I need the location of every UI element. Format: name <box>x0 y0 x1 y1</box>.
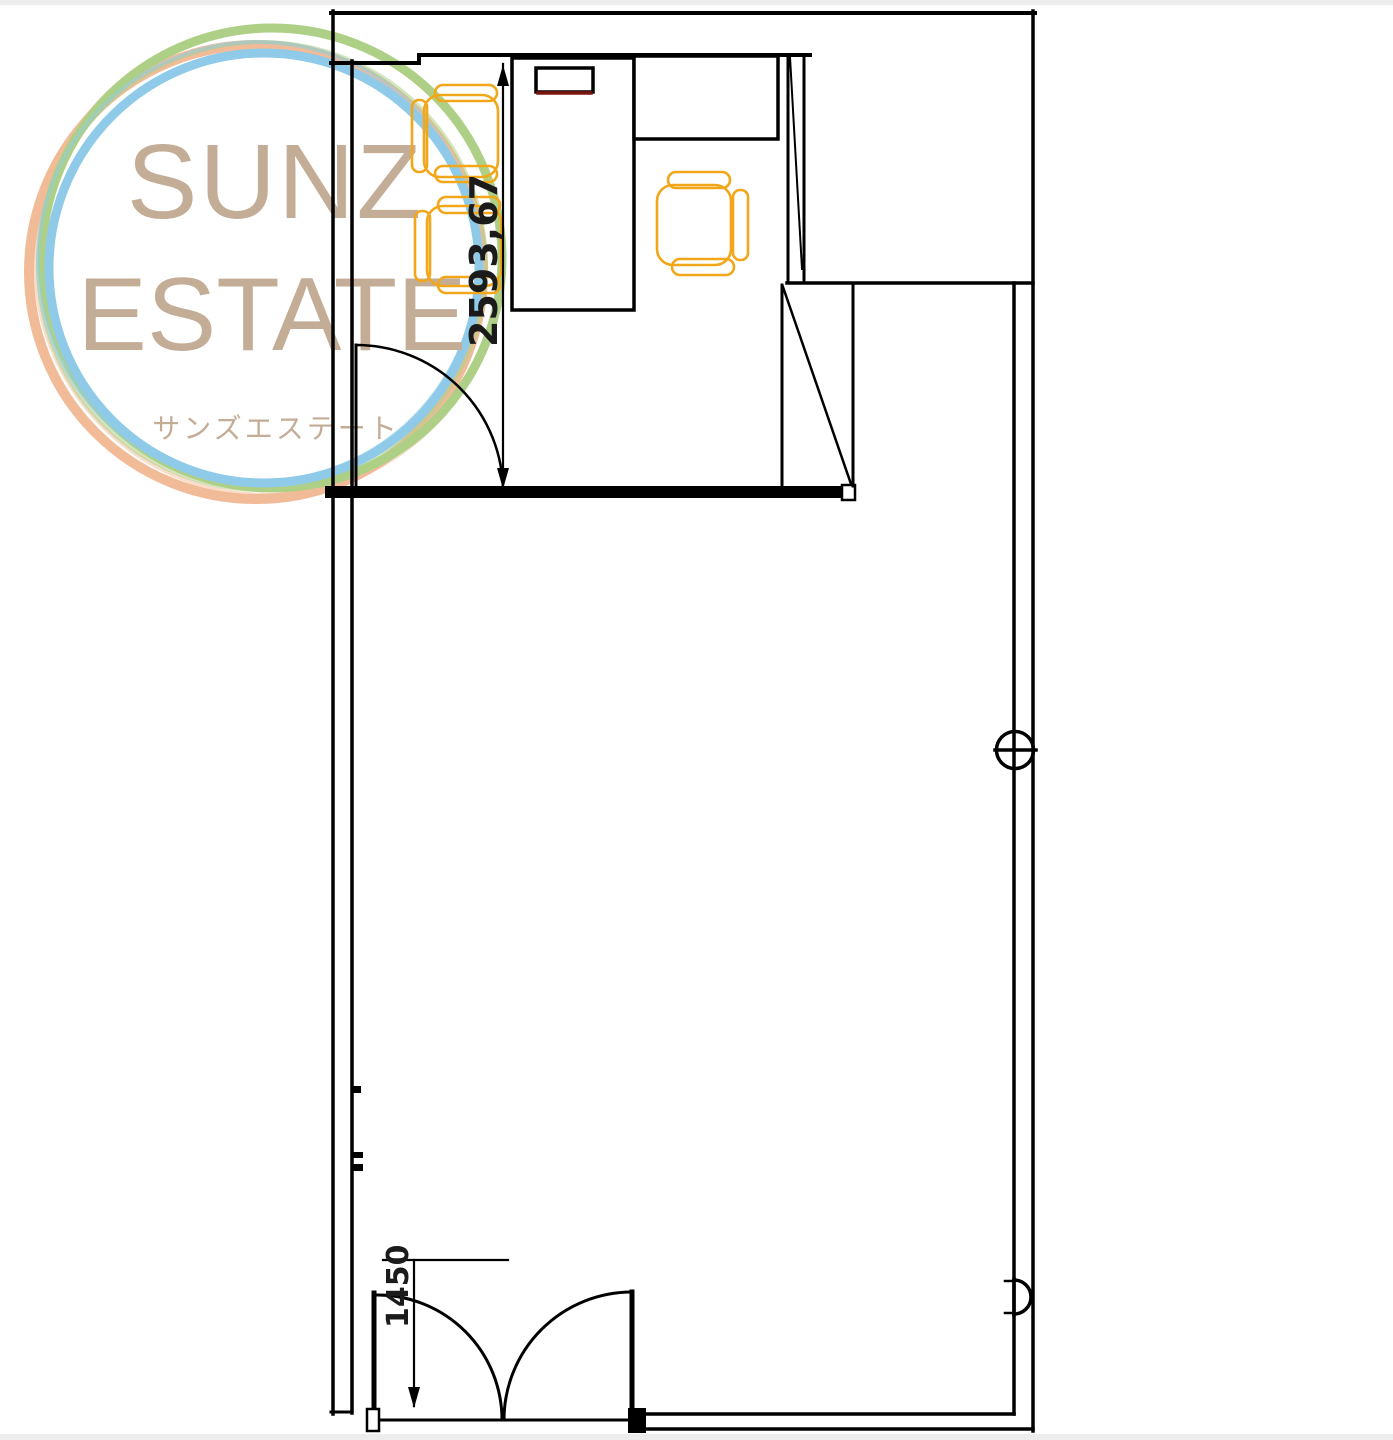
floor-plan: 2593,67 1450 <box>331 11 1036 1433</box>
chair-3 <box>657 172 748 275</box>
utility-semicircle-symbol <box>1014 1280 1031 1314</box>
dimension-entrance-label: 1450 <box>381 1245 416 1329</box>
dimension-entrance: 1450 <box>381 1245 508 1409</box>
partition-strip-diagonal <box>790 57 802 269</box>
dimension-room-depth-label: 2593,67 <box>462 174 506 347</box>
wall-symbols <box>351 732 1036 1316</box>
desk-return <box>634 56 778 139</box>
furniture <box>512 56 778 310</box>
entrance-left-jamb-post <box>367 1409 379 1431</box>
logo-title-line1: SUNZ <box>127 123 424 241</box>
chair-1-armrest-top <box>435 85 497 101</box>
monitor <box>536 68 593 92</box>
top-page-band <box>0 0 1393 5</box>
outer-walls <box>331 11 1035 1431</box>
chair-3-back <box>733 190 748 260</box>
bottom-page-band <box>0 1434 1393 1440</box>
left-wall-tick-1 <box>351 1086 361 1093</box>
desk-vertical <box>512 58 634 310</box>
chair-3-seat <box>657 185 731 265</box>
dimension-room-depth-arrow-up <box>497 65 509 86</box>
left-wall-tick-3 <box>351 1164 363 1171</box>
dimension-room-depth-arrow-down <box>497 468 509 489</box>
dimension-entrance-arrow-down <box>408 1387 420 1408</box>
left-wall-tick-2 <box>351 1152 363 1158</box>
floor-plan-page: SUNZ ESTATE サンズエステート <box>0 0 1393 1440</box>
floor-plan-svg: SUNZ ESTATE サンズエステート <box>0 0 1393 1440</box>
entrance-right-jamb-post <box>628 1408 646 1433</box>
dimension-room-depth: 2593,67 <box>462 64 509 490</box>
logo-subtitle-japanese: サンズエステート <box>152 413 399 444</box>
entrance-right-swing-arc <box>504 1292 632 1420</box>
shaft-diagonal <box>783 287 851 484</box>
